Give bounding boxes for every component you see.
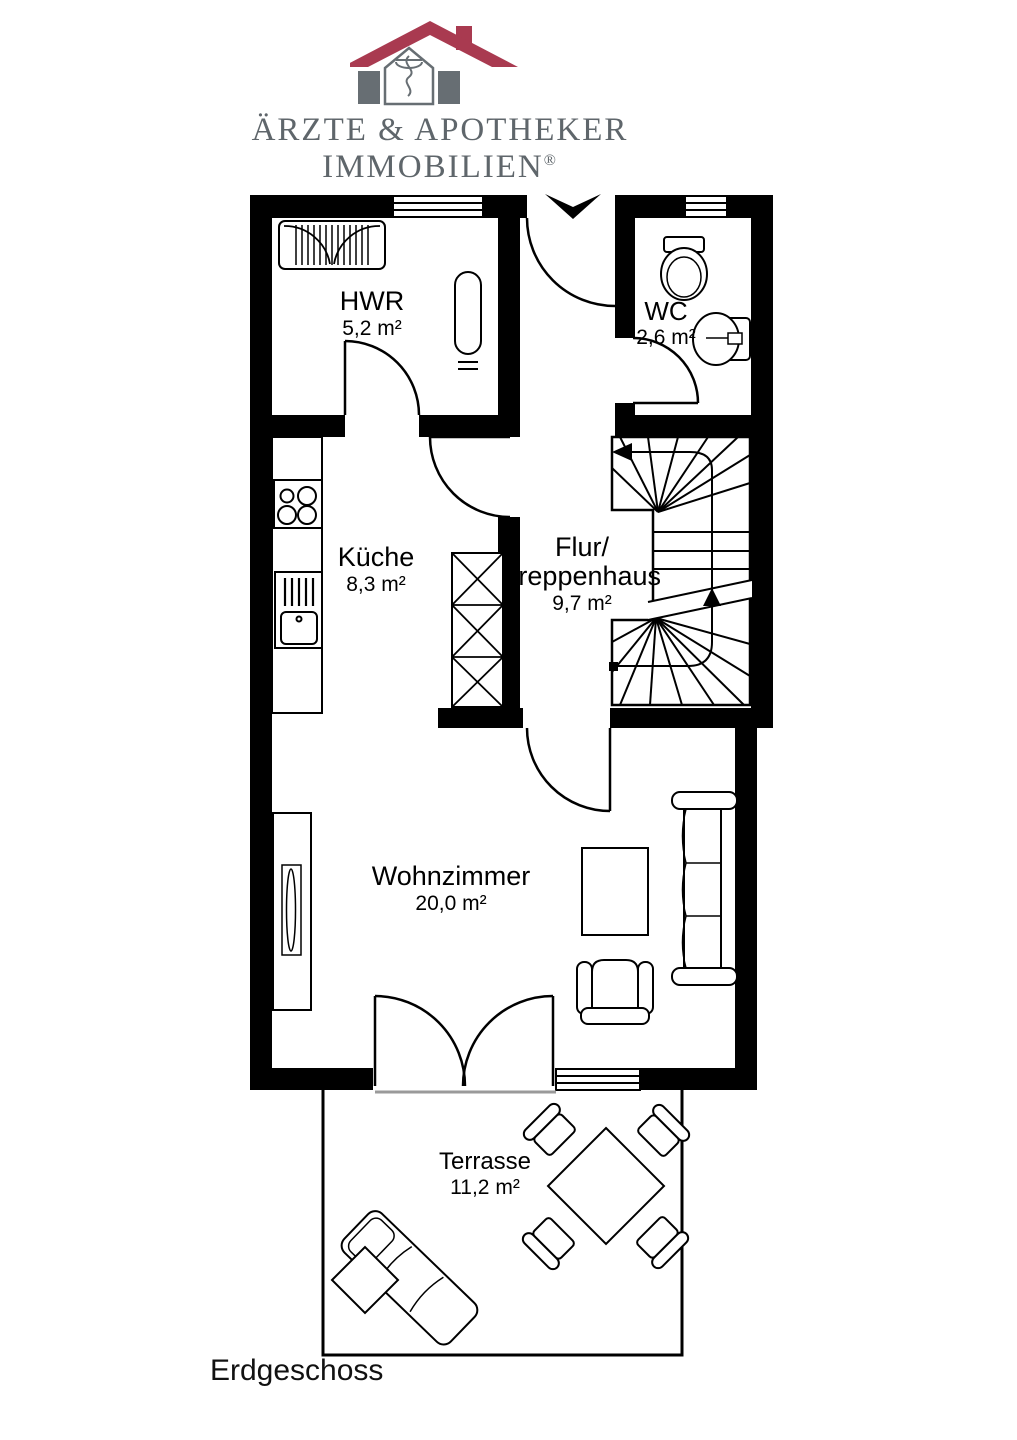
room-label-wc: WC2,6 m² <box>636 297 696 349</box>
coffee-table <box>582 848 648 935</box>
ironing-board <box>455 272 481 369</box>
stove <box>274 480 322 528</box>
floor-plan-page: ÄRZTE & APOTHEKER IMMOBILIEN® <box>0 0 1017 1440</box>
terrace-furniture <box>332 1101 692 1348</box>
kitchen-sink <box>275 572 322 648</box>
toilet <box>661 237 707 300</box>
wash-basin <box>693 313 750 365</box>
shelf-cabinet <box>452 553 503 707</box>
room-label-flur: Flur/Treppenhaus9,7 m² <box>503 533 661 615</box>
entrance-arrow-icon <box>545 194 601 219</box>
door-kueche <box>430 437 510 517</box>
floor-label: Erdgeschoss <box>210 1354 383 1388</box>
floor-plan-drawing <box>0 0 1017 1440</box>
door-wohnzimmer <box>527 728 610 811</box>
room-label-hwr: HWR5,2 m² <box>340 287 404 340</box>
room-label-wohnzimmer: Wohnzimmer20,0 m² <box>372 862 531 915</box>
washer-dryer <box>279 221 385 269</box>
chair <box>520 1214 578 1272</box>
armchair <box>577 960 653 1024</box>
dining-table <box>548 1128 664 1244</box>
tv-sideboard <box>273 813 311 1010</box>
french-door-terrace <box>375 996 553 1086</box>
room-label-kueche: Küche8,3 m² <box>338 543 415 596</box>
door-hwr <box>345 341 419 415</box>
sofa <box>672 792 737 985</box>
window-wohnzimmer <box>556 1069 640 1090</box>
window-wc <box>685 196 727 217</box>
room-label-terrasse: Terrasse11,2 m² <box>439 1149 531 1199</box>
window-hwr <box>393 196 483 217</box>
entrance-door <box>527 218 615 306</box>
